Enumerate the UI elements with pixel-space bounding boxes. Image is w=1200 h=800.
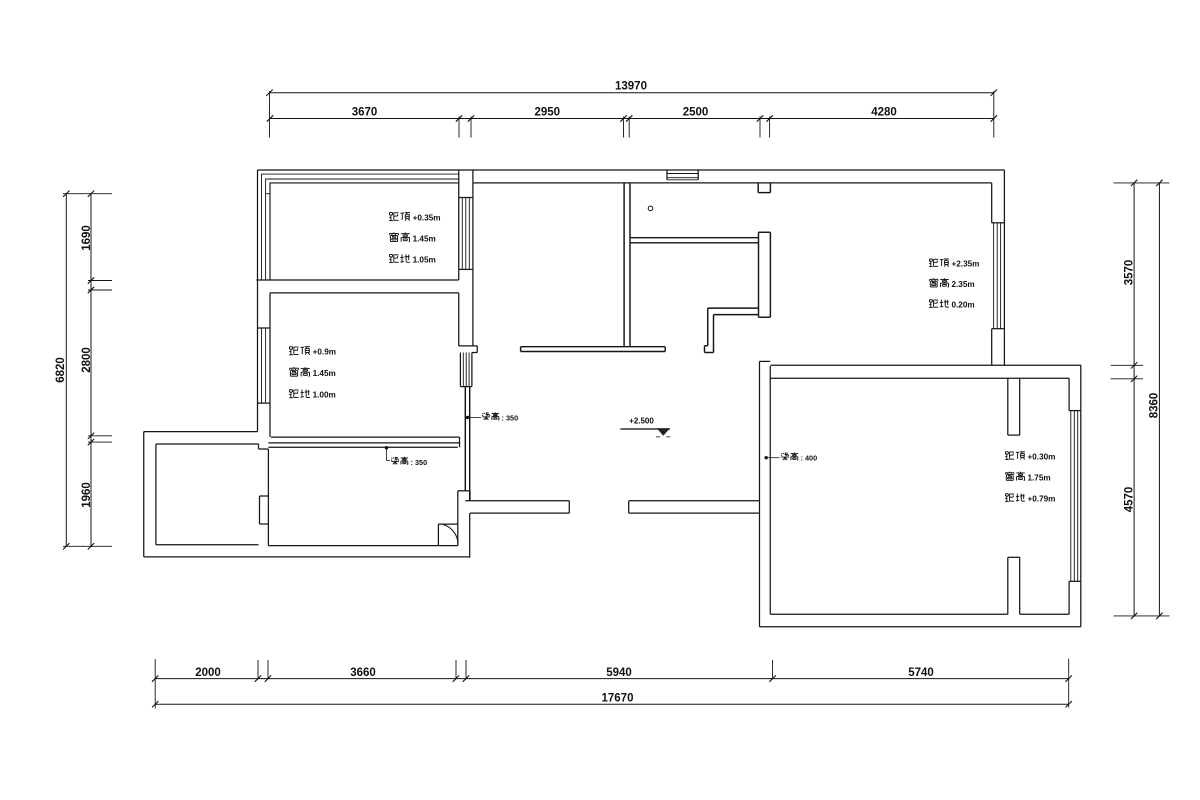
svg-text:3660: 3660: [350, 667, 376, 679]
svg-text:5940: 5940: [606, 667, 632, 679]
svg-text:: 350: : 350: [502, 414, 519, 423]
svg-text:1.75m: 1.75m: [1027, 473, 1050, 482]
svg-text:5740: 5740: [908, 667, 934, 679]
svg-text:+0.79m: +0.79m: [1027, 494, 1055, 503]
svg-text:2950: 2950: [535, 106, 561, 118]
svg-text:+2.500: +2.500: [629, 417, 654, 426]
svg-text:: 350: : 350: [411, 458, 428, 467]
svg-text:13970: 13970: [615, 81, 647, 93]
svg-text:+2.35m: +2.35m: [951, 260, 979, 269]
svg-text:+0.35m: +0.35m: [413, 214, 441, 223]
svg-text:2.35m: 2.35m: [951, 280, 974, 289]
svg-text:6820: 6820: [55, 357, 67, 383]
svg-text:4570: 4570: [1123, 487, 1135, 513]
svg-text:3670: 3670: [352, 106, 378, 118]
svg-text:2000: 2000: [195, 667, 221, 679]
svg-text:0.20m: 0.20m: [951, 300, 974, 309]
svg-text:3570: 3570: [1123, 260, 1135, 286]
svg-text:1690: 1690: [81, 225, 93, 251]
svg-text:+0.30m: +0.30m: [1027, 452, 1055, 461]
svg-text:2800: 2800: [81, 347, 93, 373]
svg-text:+0.9m: +0.9m: [313, 348, 336, 357]
svg-text:2500: 2500: [683, 106, 709, 118]
svg-text:1.45m: 1.45m: [313, 369, 336, 378]
svg-text:1.05m: 1.05m: [413, 256, 436, 265]
svg-text:4280: 4280: [871, 106, 897, 118]
svg-text:1.45m: 1.45m: [413, 235, 436, 244]
svg-text:: 400: : 400: [801, 454, 818, 463]
svg-text:1960: 1960: [81, 482, 93, 508]
svg-text:8360: 8360: [1148, 393, 1160, 419]
svg-text:17670: 17670: [602, 693, 634, 705]
svg-text:1.00m: 1.00m: [313, 391, 336, 400]
